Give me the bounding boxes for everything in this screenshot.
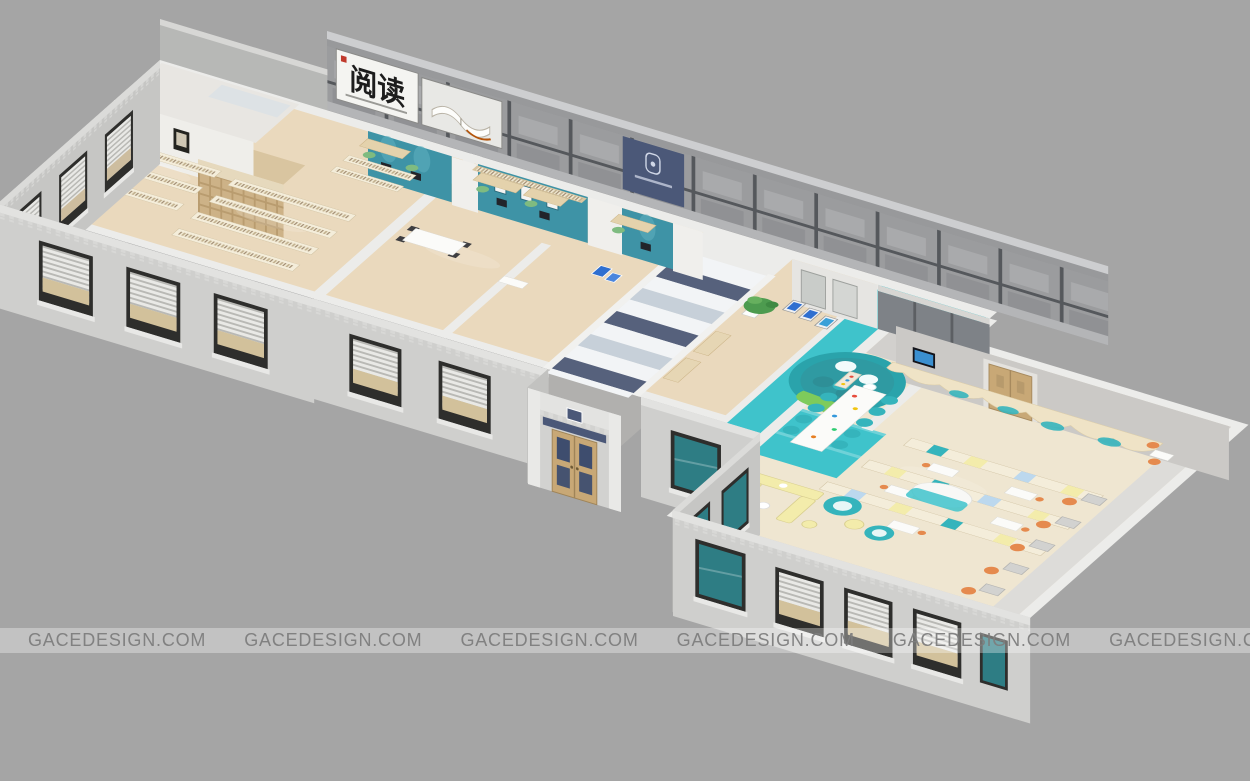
watermark-text: GACEDESIGN.COM — [28, 630, 206, 651]
watermark-text: GACEDESIGN.COM — [893, 630, 1071, 651]
building: 阅读 — [0, 19, 1250, 724]
watermark-band: GACEDESIGN.COM GACEDESIGN.COM GACEDESIGN… — [0, 628, 1250, 653]
entrance-door — [552, 429, 597, 504]
watermark-text: GACEDESIGN.COM — [244, 630, 422, 651]
watermark-text: GACEDESIGN.COM — [677, 630, 855, 651]
pilaster — [528, 388, 540, 488]
isometric-building-render: 阅读 — [0, 0, 1250, 781]
pilaster — [609, 412, 621, 512]
watermark-text: GACEDESIGN.COM — [1109, 630, 1250, 651]
render-canvas: 阅读 — [0, 0, 1250, 781]
watermark-text: GACEDESIGN.COM — [460, 630, 638, 651]
